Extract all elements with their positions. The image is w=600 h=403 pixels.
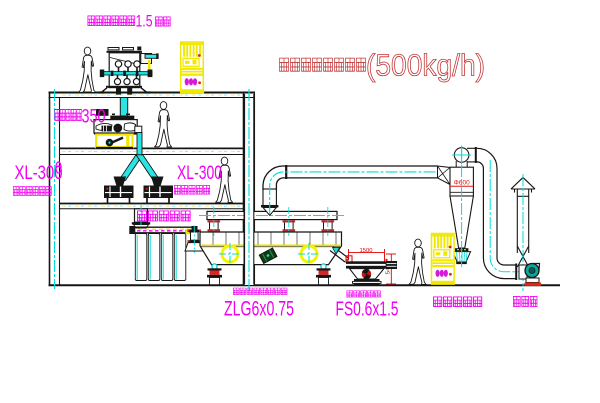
svg-text:1500: 1500	[360, 248, 373, 254]
svg-text:XL-300: XL-300	[15, 163, 63, 184]
svg-text:FS0.6x1.5: FS0.6x1.5	[336, 299, 399, 321]
svg-text:1.5: 1.5	[136, 12, 153, 31]
svg-text:XL-300: XL-300	[177, 163, 222, 184]
svg-text:ZLG6x0.75: ZLG6x0.75	[224, 298, 294, 321]
svg-text:350: 350	[82, 107, 106, 128]
svg-text:(500kg/h): (500kg/h)	[366, 48, 485, 83]
